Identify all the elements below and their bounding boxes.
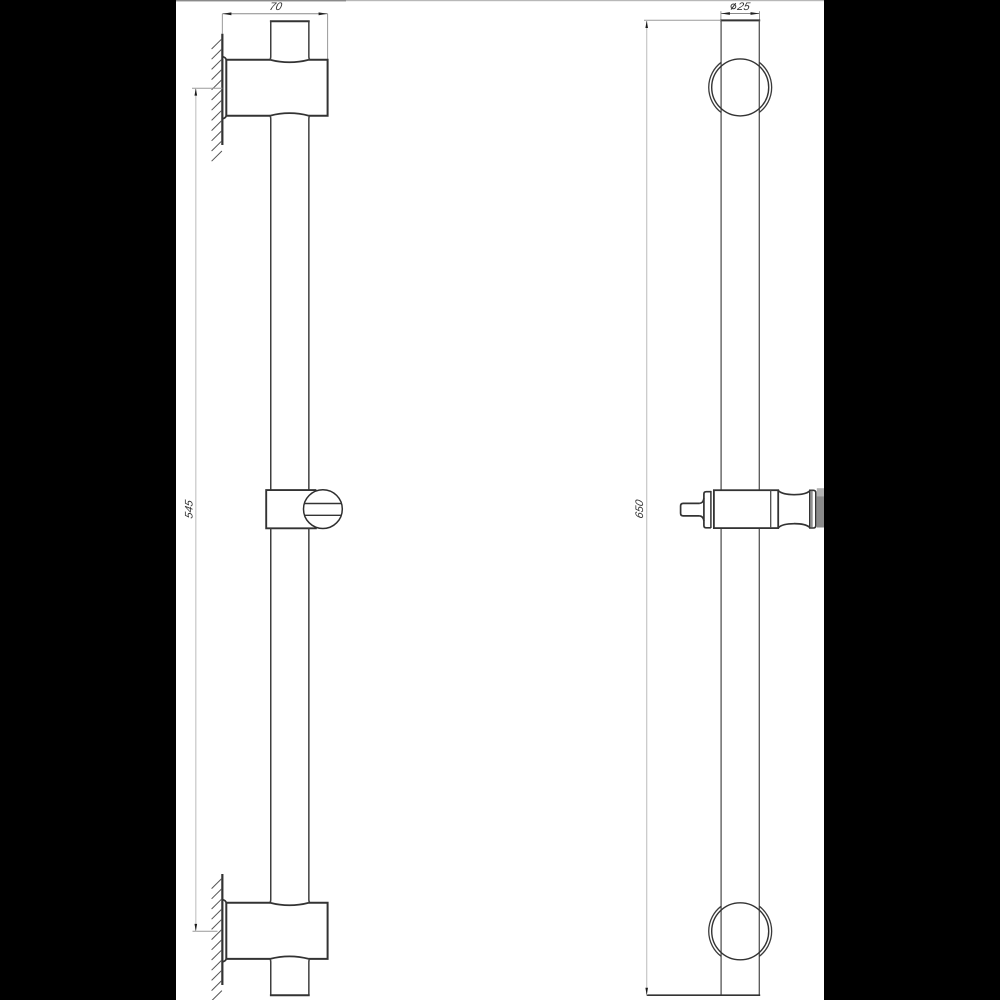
svg-text:545: 545	[183, 498, 195, 520]
svg-text:650: 650	[634, 498, 646, 520]
